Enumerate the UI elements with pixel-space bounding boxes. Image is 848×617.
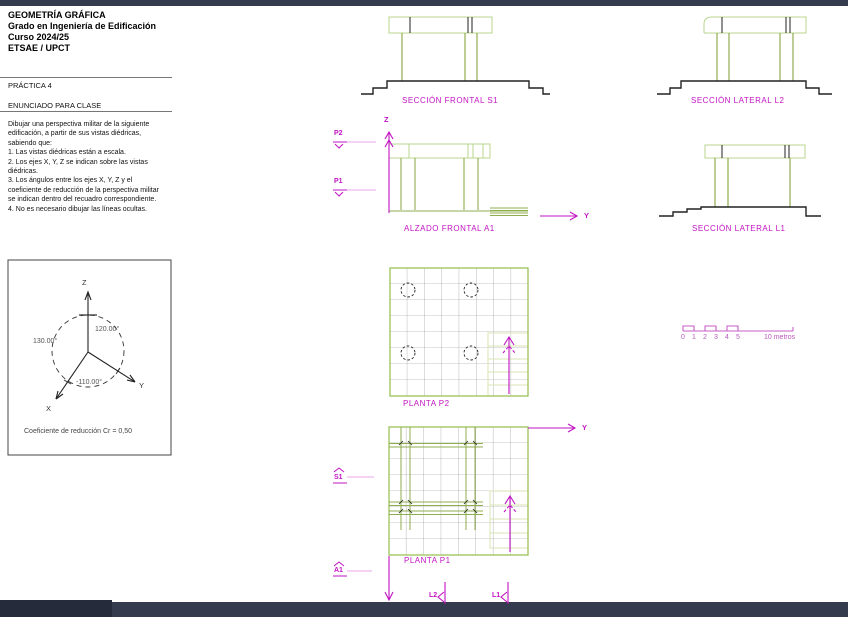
practice-label: PRÁCTICA 4 <box>8 81 52 90</box>
scale-tick-0: 0 <box>681 334 685 341</box>
axes-box-z-label: Z <box>82 278 87 287</box>
marker-l1-lines <box>501 582 508 604</box>
view-title-seccion-lateral-l1: SECCIÓN LATERAL L1 <box>692 224 785 233</box>
ground-stairs-line <box>659 207 821 216</box>
reduction-coefficient: Coeficiente de reducción Cr = 0,50 <box>24 428 132 435</box>
angle-zy: 120.00° <box>95 326 119 333</box>
columns <box>401 158 478 210</box>
view-alzado-frontal-a1-drawing <box>333 132 577 220</box>
y-axis-arrow <box>540 212 577 220</box>
statement-text: Dibujar una perspectiva militar de la si… <box>8 120 298 214</box>
view-title-planta-p1: PLANTA P1 <box>404 556 451 565</box>
scale-tick-3: 3 <box>714 334 718 341</box>
marker-l1: L1 <box>492 592 500 599</box>
columns <box>715 158 790 207</box>
marker-p2-lines <box>333 142 376 148</box>
title-block: GEOMETRÍA GRÁFICA Grado en Ingeniería de… <box>8 10 156 54</box>
marker-l2: L2 <box>429 592 437 599</box>
scale-end-label: 10 metros <box>764 334 795 341</box>
marker-p2: P2 <box>334 130 343 137</box>
scale-tick-5: 5 <box>736 334 740 341</box>
columns <box>402 33 477 81</box>
stairs-hatch <box>490 208 528 216</box>
columns <box>717 33 793 81</box>
alzado-y-axis-label: Y <box>584 211 589 220</box>
marker-a1: A1 <box>334 567 343 574</box>
scale-tick-2: 2 <box>703 334 707 341</box>
scale-bar <box>683 326 793 331</box>
view-seccion-lateral-l2-drawing <box>657 17 832 94</box>
marker-p1: P1 <box>334 178 343 185</box>
axes-box-y-label: Y <box>139 381 144 390</box>
axes-box-drawing <box>8 260 171 455</box>
divider-line <box>0 111 172 112</box>
axes-box-x-label: X <box>46 404 51 413</box>
marker-p1-lines <box>333 190 376 196</box>
view-title-alzado-frontal-a1: ALZADO FRONTAL A1 <box>404 224 495 233</box>
view-seccion-lateral-l1-drawing <box>659 145 821 216</box>
view-seccion-frontal-s1-drawing <box>361 17 550 94</box>
lineart-layer <box>0 0 848 617</box>
view-title-seccion-lateral-l2: SECCIÓN LATERAL L2 <box>691 96 784 105</box>
divider-line <box>0 77 172 78</box>
angle-zx: 130.00° <box>33 338 57 345</box>
z-axis-arrow <box>385 132 393 213</box>
planta-p1-y-axis-label: Y <box>582 423 587 432</box>
marker-s1: S1 <box>334 474 343 481</box>
view-title-planta-p2: PLANTA P2 <box>403 399 450 408</box>
scale-tick-1: 1 <box>692 334 696 341</box>
drawing-sheet: GEOMETRÍA GRÁFICA Grado en Ingeniería de… <box>0 0 848 617</box>
down-reference-arrow <box>385 556 393 600</box>
section-label: ENUNCIADO PARA CLASE <box>8 101 101 110</box>
ground-line <box>361 81 550 94</box>
view-planta-p2-drawing <box>390 268 528 396</box>
ground-line <box>657 81 832 94</box>
y-axis-arrow <box>528 424 575 432</box>
scale-tick-4: 4 <box>725 334 729 341</box>
marker-l2-lines <box>438 582 445 604</box>
angle-xy: -110.00° <box>76 379 102 386</box>
view-planta-p1-drawing <box>333 424 575 604</box>
alzado-z-axis-label: Z <box>384 115 389 124</box>
view-title-seccion-frontal-s1: SECCIÓN FRONTAL S1 <box>402 96 498 105</box>
